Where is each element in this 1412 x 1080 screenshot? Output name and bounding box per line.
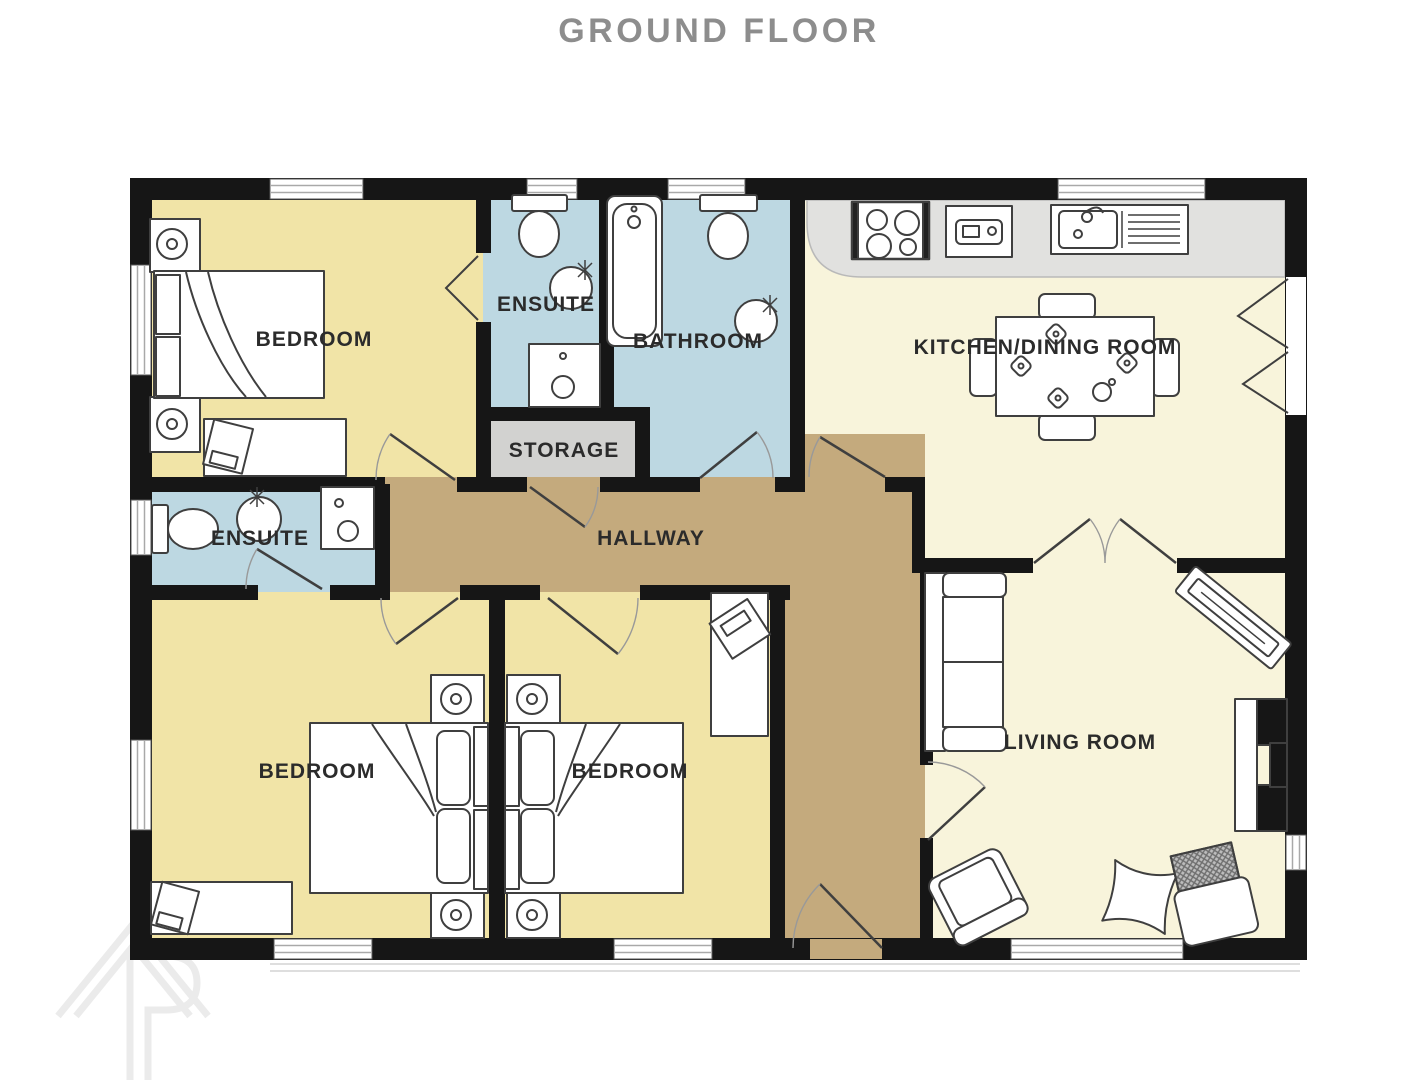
window-icon: [270, 179, 363, 199]
wardrobe-icon: [710, 593, 771, 736]
nightstand-lamp-icon: [431, 675, 484, 723]
shower-tray-icon: [529, 344, 600, 407]
chair-icon: [1039, 294, 1095, 319]
nightstand-lamp-icon: [507, 893, 560, 938]
nightstand-lamp-icon: [507, 675, 560, 723]
toilet-icon: [152, 505, 218, 553]
dresser-tv-icon: [151, 882, 292, 934]
chair-icon: [1039, 414, 1095, 440]
window-icon: [1058, 179, 1205, 199]
room-label-ensuite-1: ENSUITE: [497, 293, 595, 316]
double-bed-icon: [310, 723, 488, 893]
room-label-living-room: LIVING ROOM: [1004, 731, 1156, 754]
window-icon: [131, 500, 151, 555]
window-icon: [131, 740, 151, 830]
page-title: GROUND FLOOR: [558, 12, 880, 50]
nightstand-lamp-icon: [431, 893, 484, 938]
window-icon: [1286, 835, 1306, 870]
sink-drainer-icon: [1051, 205, 1188, 254]
window-icon: [614, 939, 712, 959]
floorplan-page: GROUND FLOOR: [0, 0, 1412, 1080]
room-label-bathroom: BATHROOM: [633, 330, 763, 353]
front-door-opening: [810, 939, 882, 959]
room-label-bedroom-1: BEDROOM: [256, 328, 373, 351]
room-label-storage: STORAGE: [509, 439, 619, 462]
sofa-icon: [925, 573, 1006, 751]
french-door-opening: [1286, 277, 1306, 415]
window-icon: [274, 939, 372, 959]
window-icon: [1011, 939, 1183, 959]
room-label-ensuite-2: ENSUITE: [211, 527, 309, 550]
exterior-ground-lines: [270, 964, 1300, 971]
nightstand-lamp-icon: [150, 397, 200, 452]
nightstand-lamp-icon: [150, 219, 200, 272]
ground-floor-plan: GROUND FLOOR: [0, 0, 1412, 1080]
shower-tray-icon: [321, 487, 374, 549]
window-icon: [131, 265, 151, 375]
bathtub-icon: [607, 196, 662, 346]
room-label-bedroom-3: BEDROOM: [572, 760, 689, 783]
room-label-kitchen: KITCHEN/DINING ROOM: [914, 336, 1177, 359]
hallway-entry-leg: [778, 592, 925, 952]
double-bed-icon: [505, 723, 683, 893]
hob-icon: [852, 202, 929, 259]
dresser-tv-icon: [203, 419, 346, 476]
room-label-bedroom-2: BEDROOM: [259, 760, 376, 783]
room-label-hallway: HALLWAY: [597, 527, 705, 550]
oven-icon: [946, 206, 1012, 257]
